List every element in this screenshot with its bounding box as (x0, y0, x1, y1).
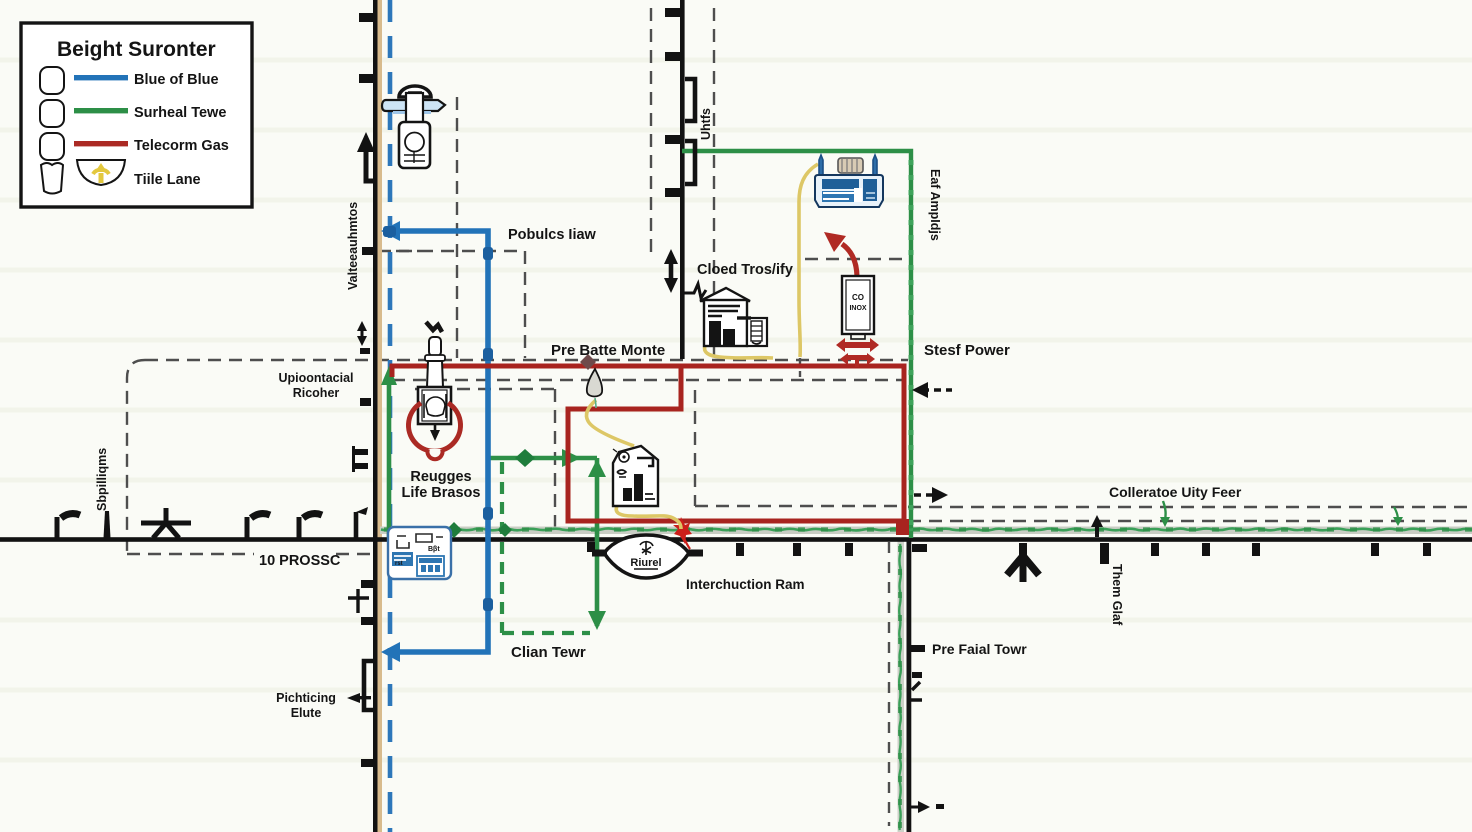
svg-text:Tiile Lane: Tiile Lane (134, 172, 201, 188)
svg-text:Beight Suronter: Beight Suronter (57, 38, 216, 61)
svg-text:Pobulcs Iiaw: Pobulcs Iiaw (508, 227, 597, 243)
svg-text:Colleratoe Uity Feer: Colleratoe Uity Feer (1109, 484, 1242, 500)
svg-text:Riurel: Riurel (630, 557, 661, 569)
svg-text:Uhtfs: Uhtfs (699, 108, 713, 140)
svg-text:Pre Faial Towr: Pre Faial Towr (932, 641, 1027, 657)
svg-text:rst: rst (395, 561, 403, 567)
svg-text:Cloed Tros/ify: Cloed Tros/ify (697, 262, 793, 278)
svg-text:10 PROSSC: 10 PROSSC (259, 553, 341, 569)
svg-text:Sbpilliqms: Sbpilliqms (95, 448, 109, 511)
svg-text:Surheal Tewe: Surheal Tewe (134, 105, 226, 121)
svg-text:Interchuction Ram: Interchuction Ram (686, 577, 805, 592)
svg-text:INOX: INOX (849, 305, 866, 312)
svg-text:Blue of Blue: Blue of Blue (134, 72, 219, 88)
svg-text:Pre Batte Monte: Pre Batte Monte (551, 342, 665, 359)
svg-text:Elute: Elute (291, 706, 322, 720)
svg-text:Them Glaf: Them Glaf (1110, 564, 1124, 626)
svg-text:Stesf Power: Stesf Power (924, 342, 1010, 359)
svg-text:CO: CO (852, 293, 864, 302)
svg-text:Bβt: Bβt (428, 546, 440, 553)
svg-text:Reugges: Reugges (410, 469, 471, 485)
svg-text:Ricoher: Ricoher (293, 386, 340, 400)
svg-text:Valteeauhmtos: Valteeauhmtos (346, 202, 360, 290)
svg-text:Telecorm Gas: Telecorm Gas (134, 138, 229, 154)
svg-text:Life Brasos: Life Brasos (402, 485, 481, 501)
svg-text:Upioontacial: Upioontacial (278, 371, 353, 385)
svg-text:Pichticing: Pichticing (276, 691, 336, 705)
svg-text:Eaf AmpIdjs: Eaf AmpIdjs (928, 169, 942, 241)
svg-text:Clian Tewr: Clian Tewr (511, 644, 586, 661)
